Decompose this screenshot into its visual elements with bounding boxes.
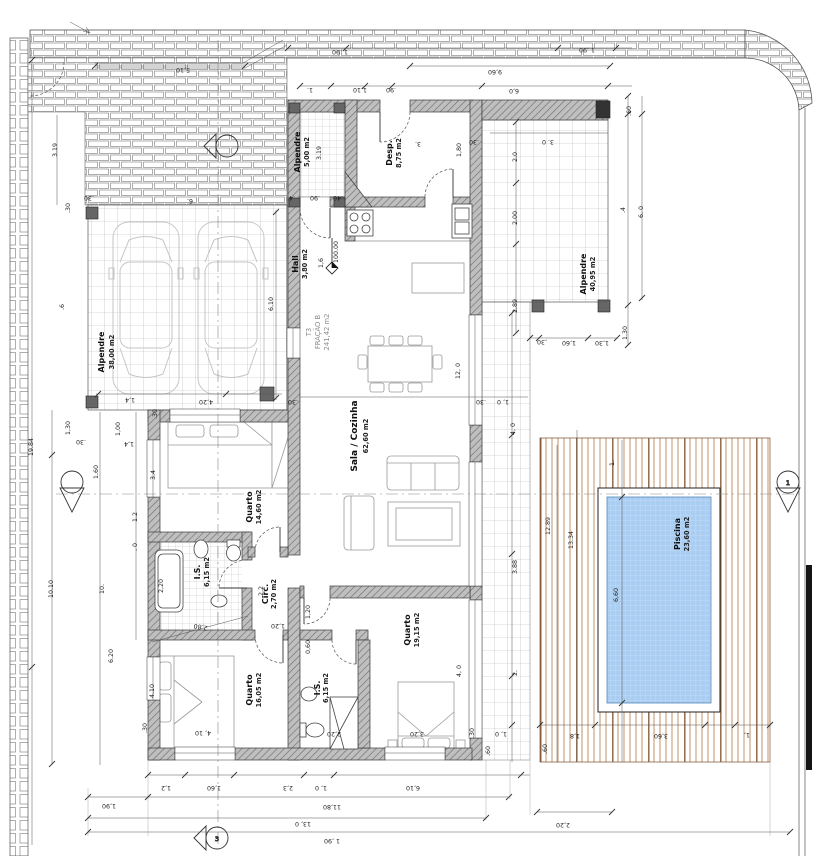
- svg-text:T3: T3: [305, 328, 313, 337]
- svg-text:Alpendre: Alpendre: [579, 253, 588, 294]
- dim-label: 2,20: [158, 579, 165, 593]
- dim-label: 2.2: [258, 586, 265, 596]
- dim-label: .30: [476, 398, 486, 405]
- section-marker-left: [60, 471, 84, 512]
- svg-text:Desp.: Desp.: [385, 140, 394, 166]
- dim-label: .6: [59, 304, 66, 310]
- room-despensa: Desp. 8,75 m2: [385, 138, 403, 168]
- dim-label: 6,0: [509, 87, 519, 94]
- svg-text:Piscina: Piscina: [673, 518, 682, 550]
- dim-label: 1 ,90: [579, 46, 595, 53]
- dim-label: 3.88: [512, 560, 519, 574]
- dim-label: 6.: [187, 197, 193, 204]
- toilet-2: [306, 723, 324, 737]
- sidewalk-corner-curve: [745, 30, 812, 110]
- dim-label: .40: [333, 194, 343, 201]
- svg-text:Alpendre: Alpendre: [293, 131, 302, 172]
- dim-label: 1,60: [562, 339, 576, 346]
- dim-label: 2,20: [556, 821, 570, 828]
- dim-label: 10.10: [48, 580, 55, 598]
- dim-label: 1,: [744, 731, 750, 738]
- dim-label: 1,30: [65, 421, 72, 435]
- dim-label: 1,00: [115, 422, 122, 436]
- svg-text:Quarto: Quarto: [245, 674, 254, 706]
- dim-label: 1,8: [570, 732, 580, 739]
- svg-text:23,60 m2: 23,60 m2: [683, 516, 691, 551]
- dim-label: 1,20: [305, 605, 312, 619]
- dim-label: 1, 0: [497, 398, 509, 405]
- dim-label: 2.89: [512, 299, 519, 313]
- svg-text:Quarto: Quarto: [245, 491, 254, 523]
- svg-text:I.S.: I.S.: [313, 681, 322, 696]
- dim-label: 1,6: [318, 258, 325, 268]
- svg-text:2,70 m2: 2,70 m2: [270, 579, 278, 609]
- level-value: 100.00: [333, 241, 340, 263]
- dim-label: .60: [542, 744, 549, 754]
- svg-text:Quarto: Quarto: [403, 614, 412, 646]
- kitchen-island: [412, 263, 464, 293]
- floor-plan-page: 1 3 100.00 Alpendre 38,00 m2 Alpendre 5,…: [0, 0, 816, 856]
- section-marker-bottom: 3: [194, 826, 228, 850]
- dim-label: 9,60: [488, 68, 502, 75]
- dim-label: .30: [65, 203, 72, 213]
- dim-label: 3.19: [52, 143, 59, 157]
- dim-label: .90: [310, 194, 320, 201]
- svg-text:Sala / Cozinha: Sala / Cozinha: [350, 400, 360, 471]
- svg-text:5,00 m2: 5,00 m2: [303, 137, 311, 167]
- svg-text:Hall: Hall: [291, 255, 300, 273]
- room-quarto-1: Quarto 14,60 m2: [245, 489, 263, 524]
- dim-label: 1.: [307, 86, 313, 93]
- svg-text:FRAÇÃO B: FRAÇÃO B: [313, 314, 322, 349]
- room-quarto-3: Quarto 19,15 m2: [403, 612, 421, 647]
- pool-water: [607, 497, 711, 703]
- dim-label: 1, 0: [315, 784, 327, 791]
- dim-label: 6.20: [108, 649, 115, 663]
- dim-label: 13, 0: [295, 820, 311, 827]
- svg-text:8,75 m2: 8,75 m2: [395, 138, 403, 168]
- dim-label: 3.19: [316, 146, 323, 160]
- dim-label: .30: [142, 723, 149, 733]
- left-property-wall: [10, 38, 28, 856]
- svg-text:6,15 m2: 6,15 m2: [203, 557, 211, 587]
- svg-text:16,05 m2: 16,05 m2: [255, 672, 263, 707]
- chaise: [344, 496, 374, 550]
- svg-text:Alpendre: Alpendre: [97, 331, 106, 372]
- dim-label: 19.84: [28, 438, 35, 456]
- dim-label: 12, 0: [455, 363, 462, 379]
- dim-label: 1,30: [595, 339, 609, 346]
- dim-label: .60: [485, 746, 492, 756]
- boundary-wall-segment: [806, 565, 812, 770]
- dim-label: 2.: [512, 670, 519, 676]
- dim-label: 1 ,90: [324, 837, 340, 844]
- dim-label: 2,3: [283, 784, 293, 791]
- dim-label: 10.: [99, 584, 106, 594]
- dim-label: 3.4: [150, 470, 157, 480]
- dim-label: 3,60: [654, 732, 668, 739]
- bidet: [211, 595, 227, 607]
- dim-label: 1.2: [132, 512, 139, 522]
- svg-text:40,95 m2: 40,95 m2: [589, 256, 597, 291]
- dim-label: 1 ,90: [332, 48, 348, 55]
- dim-label: 1,60: [207, 784, 221, 791]
- dim-label: 2.0: [512, 152, 519, 162]
- section-marker-label: 3: [215, 835, 219, 843]
- dim-label: 2.00: [512, 211, 519, 225]
- dim-label: .30: [469, 728, 476, 738]
- dim-label: 1,80: [456, 143, 463, 157]
- dim-label: ,30: [537, 338, 547, 345]
- svg-text:62,60 m2: 62,60 m2: [362, 418, 370, 453]
- dim-label: 1,90: [102, 802, 116, 809]
- dim-label: 1,2: [161, 784, 171, 791]
- kitchen-fixtures: [345, 204, 472, 241]
- dim-label: .30: [469, 138, 479, 145]
- dim-label: . 0: [132, 543, 139, 551]
- dim-label: 1, 0: [495, 730, 507, 737]
- dining-table: [368, 346, 432, 382]
- dim-label: 6,60: [613, 588, 620, 602]
- svg-text:14,60 m2: 14,60 m2: [255, 489, 263, 524]
- dim-label: 0,60: [305, 640, 312, 654]
- dim-label: 5,10: [176, 66, 190, 73]
- dim-label: 3. 0: [542, 138, 554, 145]
- dim-label: 6.10: [268, 297, 275, 311]
- svg-text:3,80 m2: 3,80 m2: [301, 249, 309, 279]
- floor-plan-canvas: 1 3 100.00 Alpendre 38,00 m2 Alpendre 5,…: [0, 0, 816, 856]
- dim-label: .30: [76, 438, 86, 445]
- dim-label: 4, 0: [456, 665, 463, 677]
- dim-label: .30: [288, 398, 298, 405]
- sofa: [387, 456, 459, 490]
- dim-label: .90: [386, 86, 396, 93]
- dim-label: 1.: [609, 460, 616, 466]
- dim-label: 4, 0: [510, 423, 517, 435]
- dim-label: 1,4: [125, 396, 135, 403]
- dim-label: 4, 10: [195, 729, 211, 736]
- section-marker-right: 1: [776, 471, 800, 512]
- dim-label: 1.30: [622, 326, 629, 340]
- dim-label: 1.60: [93, 465, 100, 479]
- dim-label: 1,10: [353, 86, 367, 93]
- dim-label: 3,20: [410, 730, 424, 737]
- room-quarto-2: Quarto 16,05 m2: [245, 672, 263, 707]
- dim-label: 4.10: [149, 684, 156, 698]
- svg-text:241,42 m2: 241,42 m2: [323, 314, 331, 351]
- dim-label: 1,20: [271, 622, 285, 629]
- dim-label: .30: [152, 409, 159, 419]
- level-marker: 100.00: [326, 238, 340, 274]
- dim-label: 13.34: [568, 531, 575, 549]
- svg-text:I.S.: I.S.: [193, 565, 202, 580]
- dim-label: 6. 0: [638, 206, 645, 218]
- dim-label: 2,20: [327, 730, 341, 737]
- dim-label: 12.89: [545, 517, 552, 535]
- svg-text:6,15 m2: 6,15 m2: [322, 673, 330, 703]
- dim-label: .30: [84, 194, 94, 201]
- svg-text:38,00 m2: 38,00 m2: [108, 334, 116, 369]
- dim-label: 11,80: [323, 803, 341, 810]
- toilet-1: [227, 545, 241, 561]
- unit-label: T3 FRAÇÃO B 241,42 m2: [305, 314, 331, 351]
- room-sala-cozinha: Sala / Cozinha 62,60 m2: [350, 400, 370, 471]
- section-marker-label: 1: [786, 479, 790, 487]
- svg-text:19,15 m2: 19,15 m2: [413, 612, 421, 647]
- dim-label: 3.: [415, 140, 421, 147]
- dim-label: .4: [620, 207, 627, 213]
- walkway-floor: [482, 302, 530, 760]
- dim-label: 4,20: [199, 398, 213, 405]
- dim-label: 1,4: [124, 440, 134, 447]
- dim-label: .4: [289, 194, 295, 201]
- dim-label: .60: [626, 106, 633, 116]
- sink-1: [194, 540, 208, 558]
- dim-label: 6,10: [406, 784, 420, 791]
